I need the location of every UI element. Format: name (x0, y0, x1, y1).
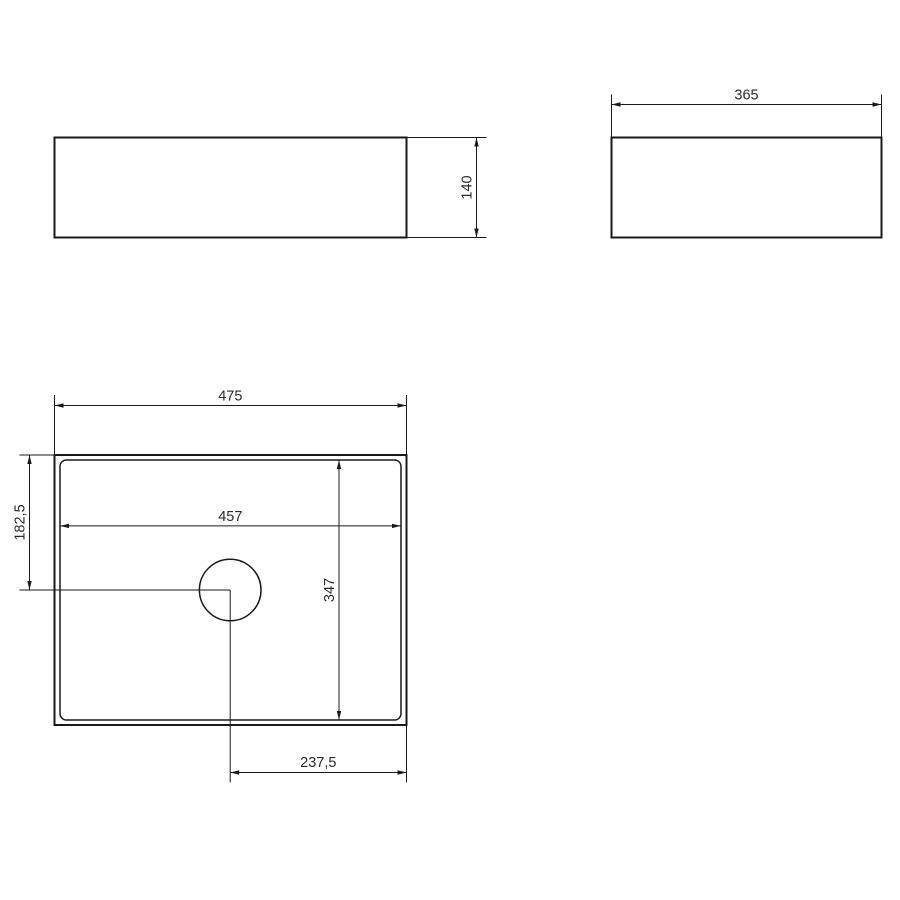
svg-text:347: 347 (322, 578, 338, 602)
svg-text:365: 365 (734, 88, 758, 104)
svg-text:457: 457 (218, 509, 242, 525)
svg-text:237,5: 237,5 (300, 755, 336, 771)
svg-text:182,5: 182,5 (13, 504, 29, 540)
svg-text:140: 140 (460, 175, 476, 199)
svg-text:475: 475 (218, 389, 242, 405)
